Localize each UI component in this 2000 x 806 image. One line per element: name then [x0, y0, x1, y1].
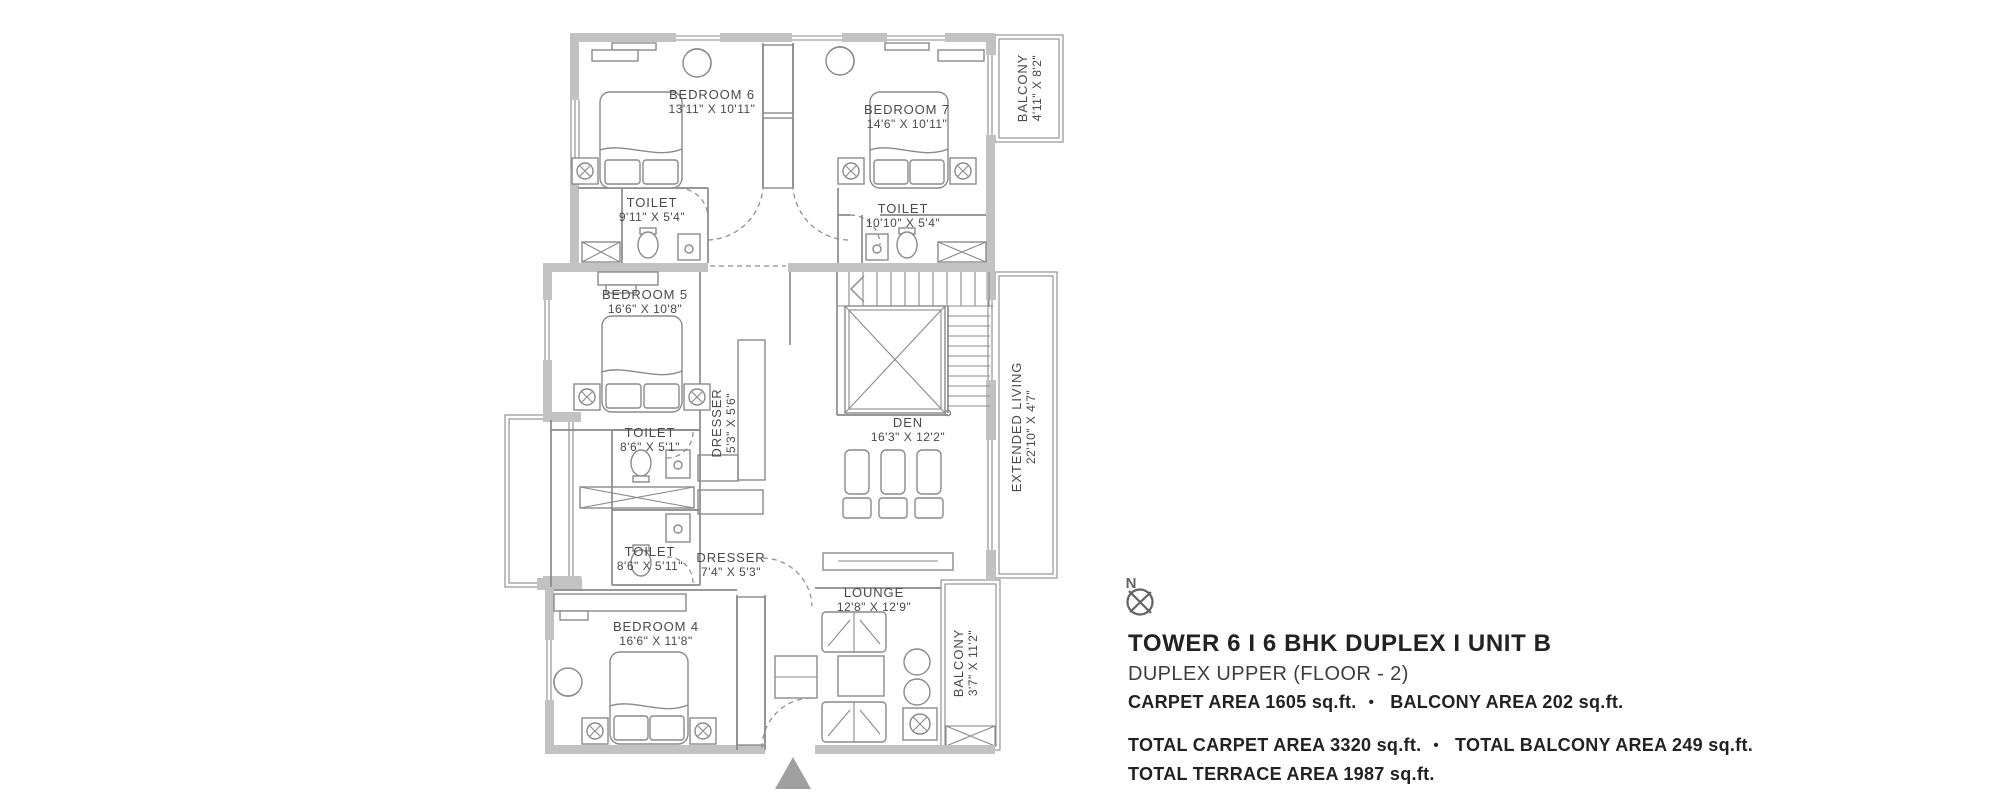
bedroom5-dims: 16'6" X 10'8" — [608, 302, 682, 316]
staircase — [837, 272, 993, 416]
nightstand-fan-icon — [690, 718, 716, 744]
terrace-area-line: TOTAL TERRACE AREA 1987 sq.ft. — [1128, 764, 1768, 785]
balcony-louver — [946, 726, 995, 746]
toilet7-fixtures — [866, 228, 917, 260]
bedroom6-label: BEDROOM 6 — [669, 87, 755, 102]
den-furniture — [823, 450, 953, 570]
nightstand-fan-icon — [574, 384, 600, 410]
total-balcony-area: TOTAL BALCONY AREA 249 sq.ft. — [1455, 735, 1753, 755]
toilet6-fixtures — [638, 228, 700, 260]
recliner-icon — [915, 450, 943, 518]
den-label: DEN — [893, 415, 923, 430]
basin-icon — [678, 234, 700, 260]
dresser5-dims: 5'3" X 5'6" — [724, 393, 738, 453]
recliner-icon — [879, 450, 907, 518]
balcony-top-dims: 4'11" X 8'2" — [1030, 55, 1044, 121]
toilet4-label: TOILET — [625, 544, 676, 559]
lounge-dims: 12'8" X 12'9" — [837, 600, 911, 614]
nightstand-fan-icon — [684, 384, 710, 410]
pouf-fan-icon — [903, 708, 937, 740]
extended-living-dims: 22'10" X 4'7" — [1024, 390, 1038, 464]
dresser4-label: DRESSER — [696, 550, 765, 565]
bedroom7-dims: 14'6" X 10'11" — [867, 117, 948, 131]
nightstand-fan-icon — [838, 158, 864, 184]
total-terrace-area: TOTAL TERRACE AREA 1987 sq.ft. — [1128, 764, 1435, 784]
basin-icon — [866, 234, 888, 260]
wc-icon — [897, 232, 917, 258]
toilet7-dims: 10'10" X 5'4" — [866, 216, 940, 230]
unit-title: TOWER 6 I 6 BHK DUPLEX I UNIT B — [1128, 630, 1768, 658]
bedroom6-dims: 13'11" X 10'11" — [669, 102, 756, 116]
dresser4-dims: 7'4" X 5'3" — [701, 565, 761, 579]
bedroom5-label: BEDROOM 5 — [602, 287, 688, 302]
bedroom7-label: BEDROOM 7 — [864, 102, 950, 117]
nightstand-fan-icon — [582, 718, 608, 744]
bedroom4-label: BEDROOM 4 — [613, 619, 699, 634]
unit-info-block: TOWER 6 I 6 BHK DUPLEX I UNIT B DUPLEX U… — [1128, 630, 1768, 785]
center-table-icon — [838, 656, 884, 696]
wc-icon — [638, 232, 658, 258]
nightstand-fan-icon — [572, 158, 598, 184]
lounge-label: LOUNGE — [844, 585, 904, 600]
recliner-icon — [843, 450, 871, 518]
toilet4-dims: 8'6" X 5'11" — [617, 559, 683, 573]
toilet7-label: TOILET — [878, 201, 929, 216]
basin-icon — [666, 450, 690, 478]
extended-living-label: EXTENDED LIVING — [1009, 362, 1024, 493]
toilet5-fixtures — [631, 450, 690, 482]
dresser5-label: DRESSER — [709, 388, 724, 457]
bullet-separator: • — [1433, 737, 1439, 754]
round-table-icon — [904, 649, 930, 675]
balcony-area: BALCONY AREA 202 sq.ft. — [1390, 692, 1623, 712]
page: { "colors": { "wall": "#c2c2c2", "line":… — [0, 0, 2000, 806]
carpet-area: CARPET AREA 1605 sq.ft. — [1128, 692, 1357, 712]
toilet5-dims: 8'6" X 5'1" — [620, 440, 680, 454]
toilet5-label: TOILET — [625, 425, 676, 440]
balcony-bottom-dims: 3'7" X 11'2" — [966, 630, 980, 696]
sideboard-icon — [775, 656, 817, 698]
total-carpet-area: TOTAL CARPET AREA 3320 sq.ft. — [1128, 735, 1421, 755]
floor-subtitle: DUPLEX UPPER (FLOOR - 2) — [1128, 663, 1768, 686]
unit-area-line: CARPET AREA 1605 sq.ft.•BALCONY AREA 202… — [1128, 692, 1768, 713]
bullet-separator: • — [1369, 694, 1375, 711]
balcony-top-label: BALCONY — [1015, 54, 1030, 122]
sofa-icon — [822, 612, 886, 652]
double-height-void — [845, 306, 945, 413]
round-table-icon — [904, 679, 930, 705]
basin-icon — [666, 514, 690, 542]
sofa-icon — [822, 702, 886, 742]
stair-direction-arrow — [851, 276, 864, 302]
north-compass-icon: N — [1126, 575, 1153, 615]
entry-arrow-icon — [775, 757, 811, 789]
duct-box — [580, 487, 694, 508]
balcony-bottom-label: BALCONY — [951, 629, 966, 697]
bedroom4-furniture — [554, 594, 716, 744]
tv-console-icon — [823, 553, 953, 570]
lounge-furniture — [775, 612, 937, 742]
nightstand-fan-icon — [950, 158, 976, 184]
total-area-line: TOTAL CARPET AREA 3320 sq.ft.•TOTAL BALC… — [1128, 735, 1768, 756]
bedroom4-dims: 16'6" X 11'8" — [619, 634, 692, 648]
den-dims: 16'3" X 12'2" — [871, 430, 945, 444]
toilet6-dims: 9'11" X 5'4" — [619, 210, 685, 224]
toilet6-label: TOILET — [627, 195, 678, 210]
